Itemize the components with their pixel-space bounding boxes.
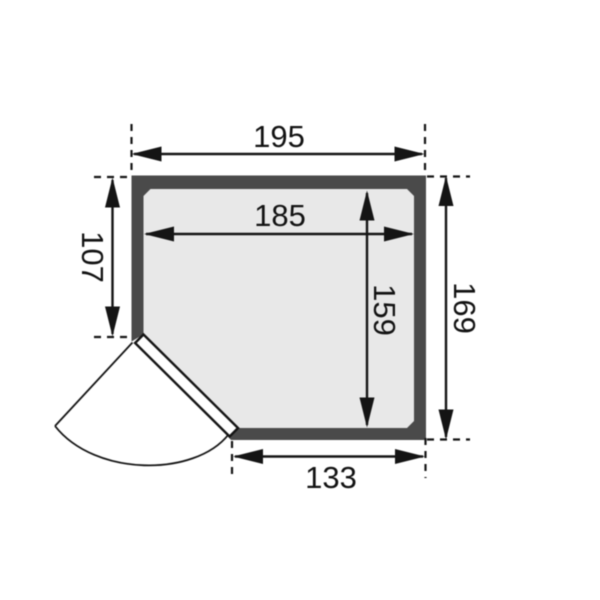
svg-text:133: 133 — [305, 460, 357, 495]
svg-text:159: 159 — [367, 284, 402, 336]
svg-text:185: 185 — [254, 198, 306, 233]
svg-text:195: 195 — [253, 119, 305, 154]
svg-text:107: 107 — [75, 231, 110, 283]
svg-text:169: 169 — [447, 282, 482, 334]
